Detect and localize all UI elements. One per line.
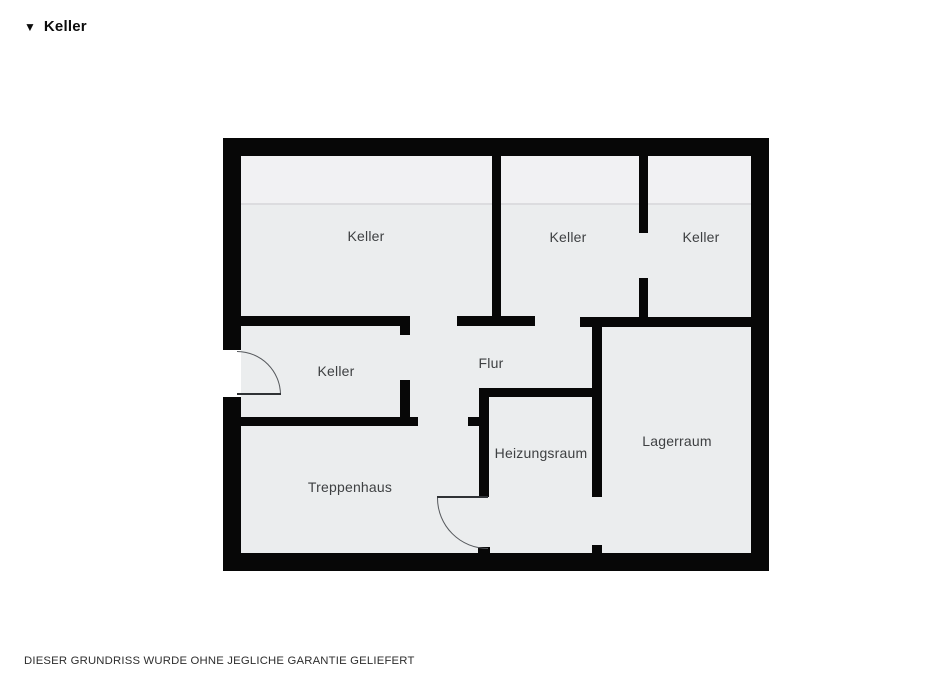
- wall-keller1-keller2-divider: [492, 156, 501, 326]
- wall-mid-segment-c: [580, 317, 751, 327]
- outer-wall-left-lower: [223, 397, 241, 571]
- wall-keller4-top-stub: [400, 316, 410, 335]
- wall-treppenhaus-top: [241, 417, 418, 426]
- outer-wall-top: [223, 138, 769, 156]
- room-label-heizungsraum: Heizungsraum: [495, 445, 588, 461]
- wall-keller2-keller3-upper: [639, 156, 648, 233]
- outer-wall-left-upper: [223, 138, 241, 350]
- room-label-treppenhaus: Treppenhaus: [308, 479, 392, 495]
- room-label-keller: Keller: [318, 363, 355, 379]
- treppenhaus-door-leaf: [437, 496, 488, 498]
- entry-door-leaf: [237, 393, 281, 395]
- floorplan-canvas: KellerKellerKellerKellerFlurHeizungsraum…: [0, 0, 950, 678]
- room-label-flur: Flur: [479, 355, 504, 371]
- outer-wall-right: [751, 138, 769, 571]
- wall-heizungsraum-top: [479, 388, 602, 397]
- outer-wall-bottom: [223, 553, 769, 571]
- wall-keller2-keller3-lower: [639, 278, 648, 323]
- wall-keller4-top: [241, 316, 410, 326]
- room-label-lagerraum: Lagerraum: [642, 433, 712, 449]
- wall-flur-stub: [468, 417, 479, 426]
- room-label-keller: Keller: [348, 228, 385, 244]
- room-label-keller: Keller: [683, 229, 720, 245]
- wall-lagerraum-left: [592, 327, 602, 497]
- room-label-keller: Keller: [550, 229, 587, 245]
- disclaimer-text: DIESER GRUNDRISS WURDE OHNE JEGLICHE GAR…: [24, 655, 415, 667]
- wall-heizungsraum-left: [479, 388, 489, 497]
- wall-lagerraum-stub: [592, 545, 602, 555]
